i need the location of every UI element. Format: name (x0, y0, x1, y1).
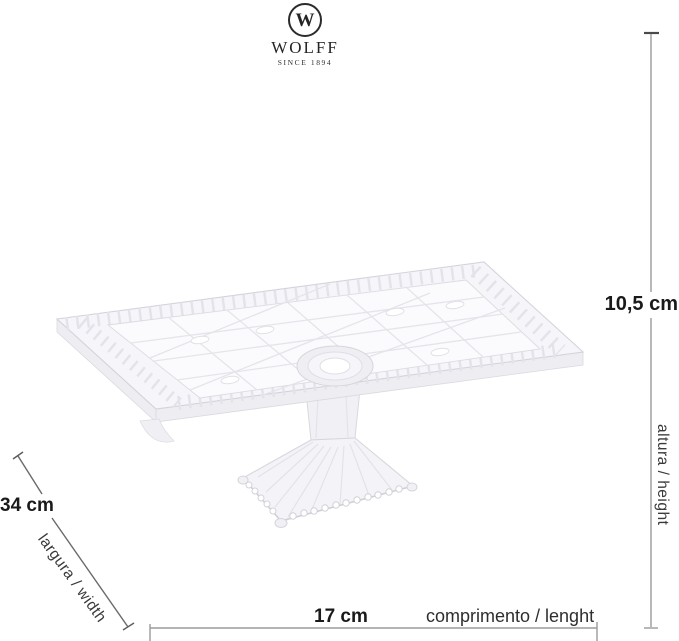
brand-monogram-circle: W (288, 3, 322, 37)
height-value: 10,5 cm (605, 293, 678, 315)
length-value: 17 cm (314, 607, 368, 628)
width-value: 34 cm (0, 496, 54, 517)
cake-stand-illustration (0, 0, 679, 641)
center-medallion (297, 346, 373, 386)
width-line-upper (18, 456, 42, 494)
width-bottom-tick (123, 623, 134, 630)
brand-tagline: SINCE 1894 (254, 59, 356, 67)
height-axis-label: altura / height (654, 424, 671, 525)
product-dimension-diagram: W WOLFF SINCE 1894 10,5 cm altura / heig… (0, 0, 679, 641)
width-top-tick (13, 452, 23, 459)
brand-name: WOLFF (254, 39, 356, 56)
brand-logo: W WOLFF SINCE 1894 (254, 3, 356, 67)
length-axis-label: comprimento / lenght (426, 607, 594, 627)
brand-monogram: W (296, 11, 315, 30)
pedestal (238, 389, 417, 528)
